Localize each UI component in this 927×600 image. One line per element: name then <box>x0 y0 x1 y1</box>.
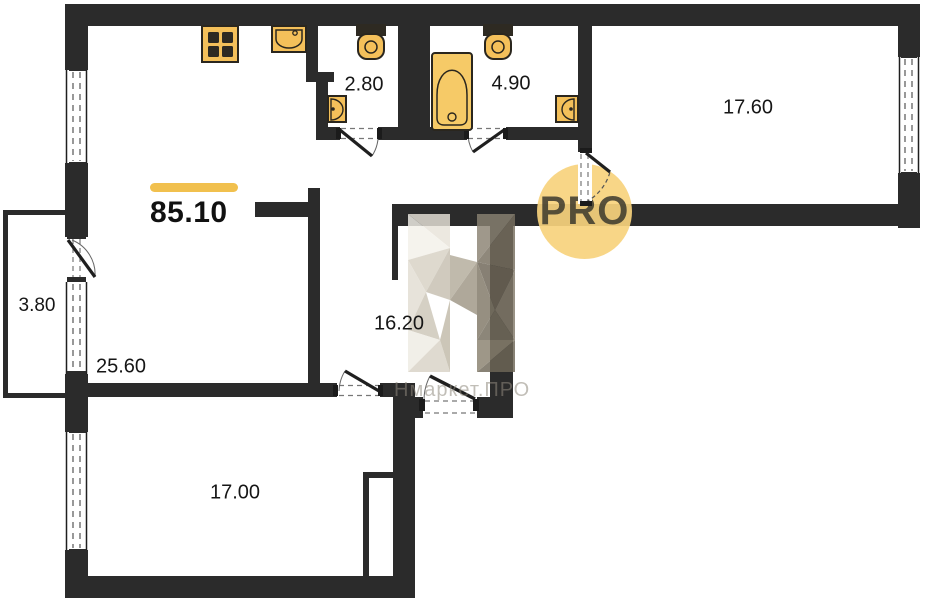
accent-bar <box>150 183 238 192</box>
door-swing <box>578 148 610 206</box>
room-area-label-wc: 2.80 <box>345 74 384 97</box>
window <box>65 426 88 556</box>
partition-wall <box>392 204 398 280</box>
window <box>898 51 920 179</box>
door-swing <box>336 127 382 156</box>
plan-symbols <box>0 0 927 600</box>
watermark-text: Нмаркет.ПРО <box>394 379 530 402</box>
small-sink-icon <box>328 96 346 122</box>
bathtub-icon <box>432 53 472 130</box>
door-swing <box>333 371 383 397</box>
room-area-label-bedroom: 17.60 <box>723 97 773 120</box>
room-area-label-hallway: 16.20 <box>374 313 424 336</box>
room-area-label-bathroom: 4.90 <box>492 73 531 96</box>
toilet-icon <box>483 24 513 59</box>
small-sink-icon <box>556 96 578 122</box>
room-area-label-balcony: 3.80 <box>19 295 56 317</box>
total-area: 85.10 <box>150 183 238 230</box>
room-area-label-bedroom-2: 17.00 <box>210 482 260 505</box>
stove-icon <box>202 26 238 62</box>
floor-plan: PRO <box>0 0 927 600</box>
total-area-label: 85.10 <box>150 196 238 230</box>
room-area-label-kitchen-living: 25.60 <box>96 356 146 379</box>
kitchen-sink-icon <box>272 26 306 52</box>
duct-niche <box>363 472 394 578</box>
toilet-icon <box>356 24 386 59</box>
window <box>65 64 88 169</box>
